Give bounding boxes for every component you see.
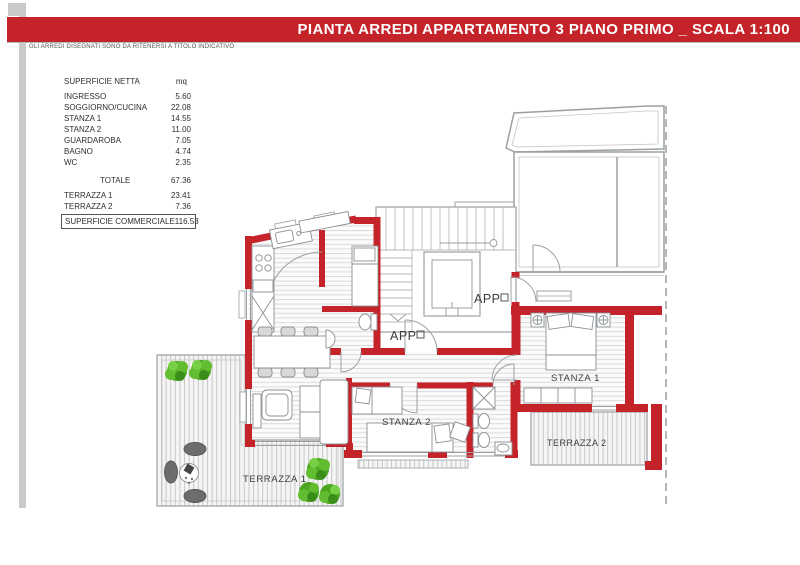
window-sill-strip	[358, 460, 468, 468]
plant	[165, 361, 188, 381]
terrazza1-label: TERRAZZA 1	[243, 474, 307, 485]
plant	[189, 360, 212, 380]
kitchen-counter	[252, 246, 274, 332]
floor-plan-sheet: PIANTA ARREDI APPARTAMENTO 3 PIANO PRIMO…	[0, 0, 800, 565]
stanza1-label: STANZA 1	[551, 373, 600, 384]
floor-plan-svg: APP APP STANZA 1 STANZA 2 TERRAZZA 1 TER…	[0, 0, 800, 565]
sofa	[300, 380, 348, 444]
armchair	[262, 390, 292, 420]
neighbor-room	[514, 152, 664, 272]
guardaroba-bed	[352, 246, 378, 306]
terrazza2-label: TERRAZZA 2	[547, 438, 607, 448]
handrail-end	[490, 240, 497, 247]
staircase	[376, 207, 516, 332]
stanza2-label: STANZA 2	[382, 417, 431, 428]
stanza1-wardrobe	[524, 388, 592, 403]
elevator	[424, 252, 480, 316]
neighbor-balcony	[506, 106, 664, 152]
tv-bench	[253, 394, 261, 428]
app-upper-label: APP	[474, 292, 501, 306]
app-lower-label: APP	[390, 329, 417, 343]
